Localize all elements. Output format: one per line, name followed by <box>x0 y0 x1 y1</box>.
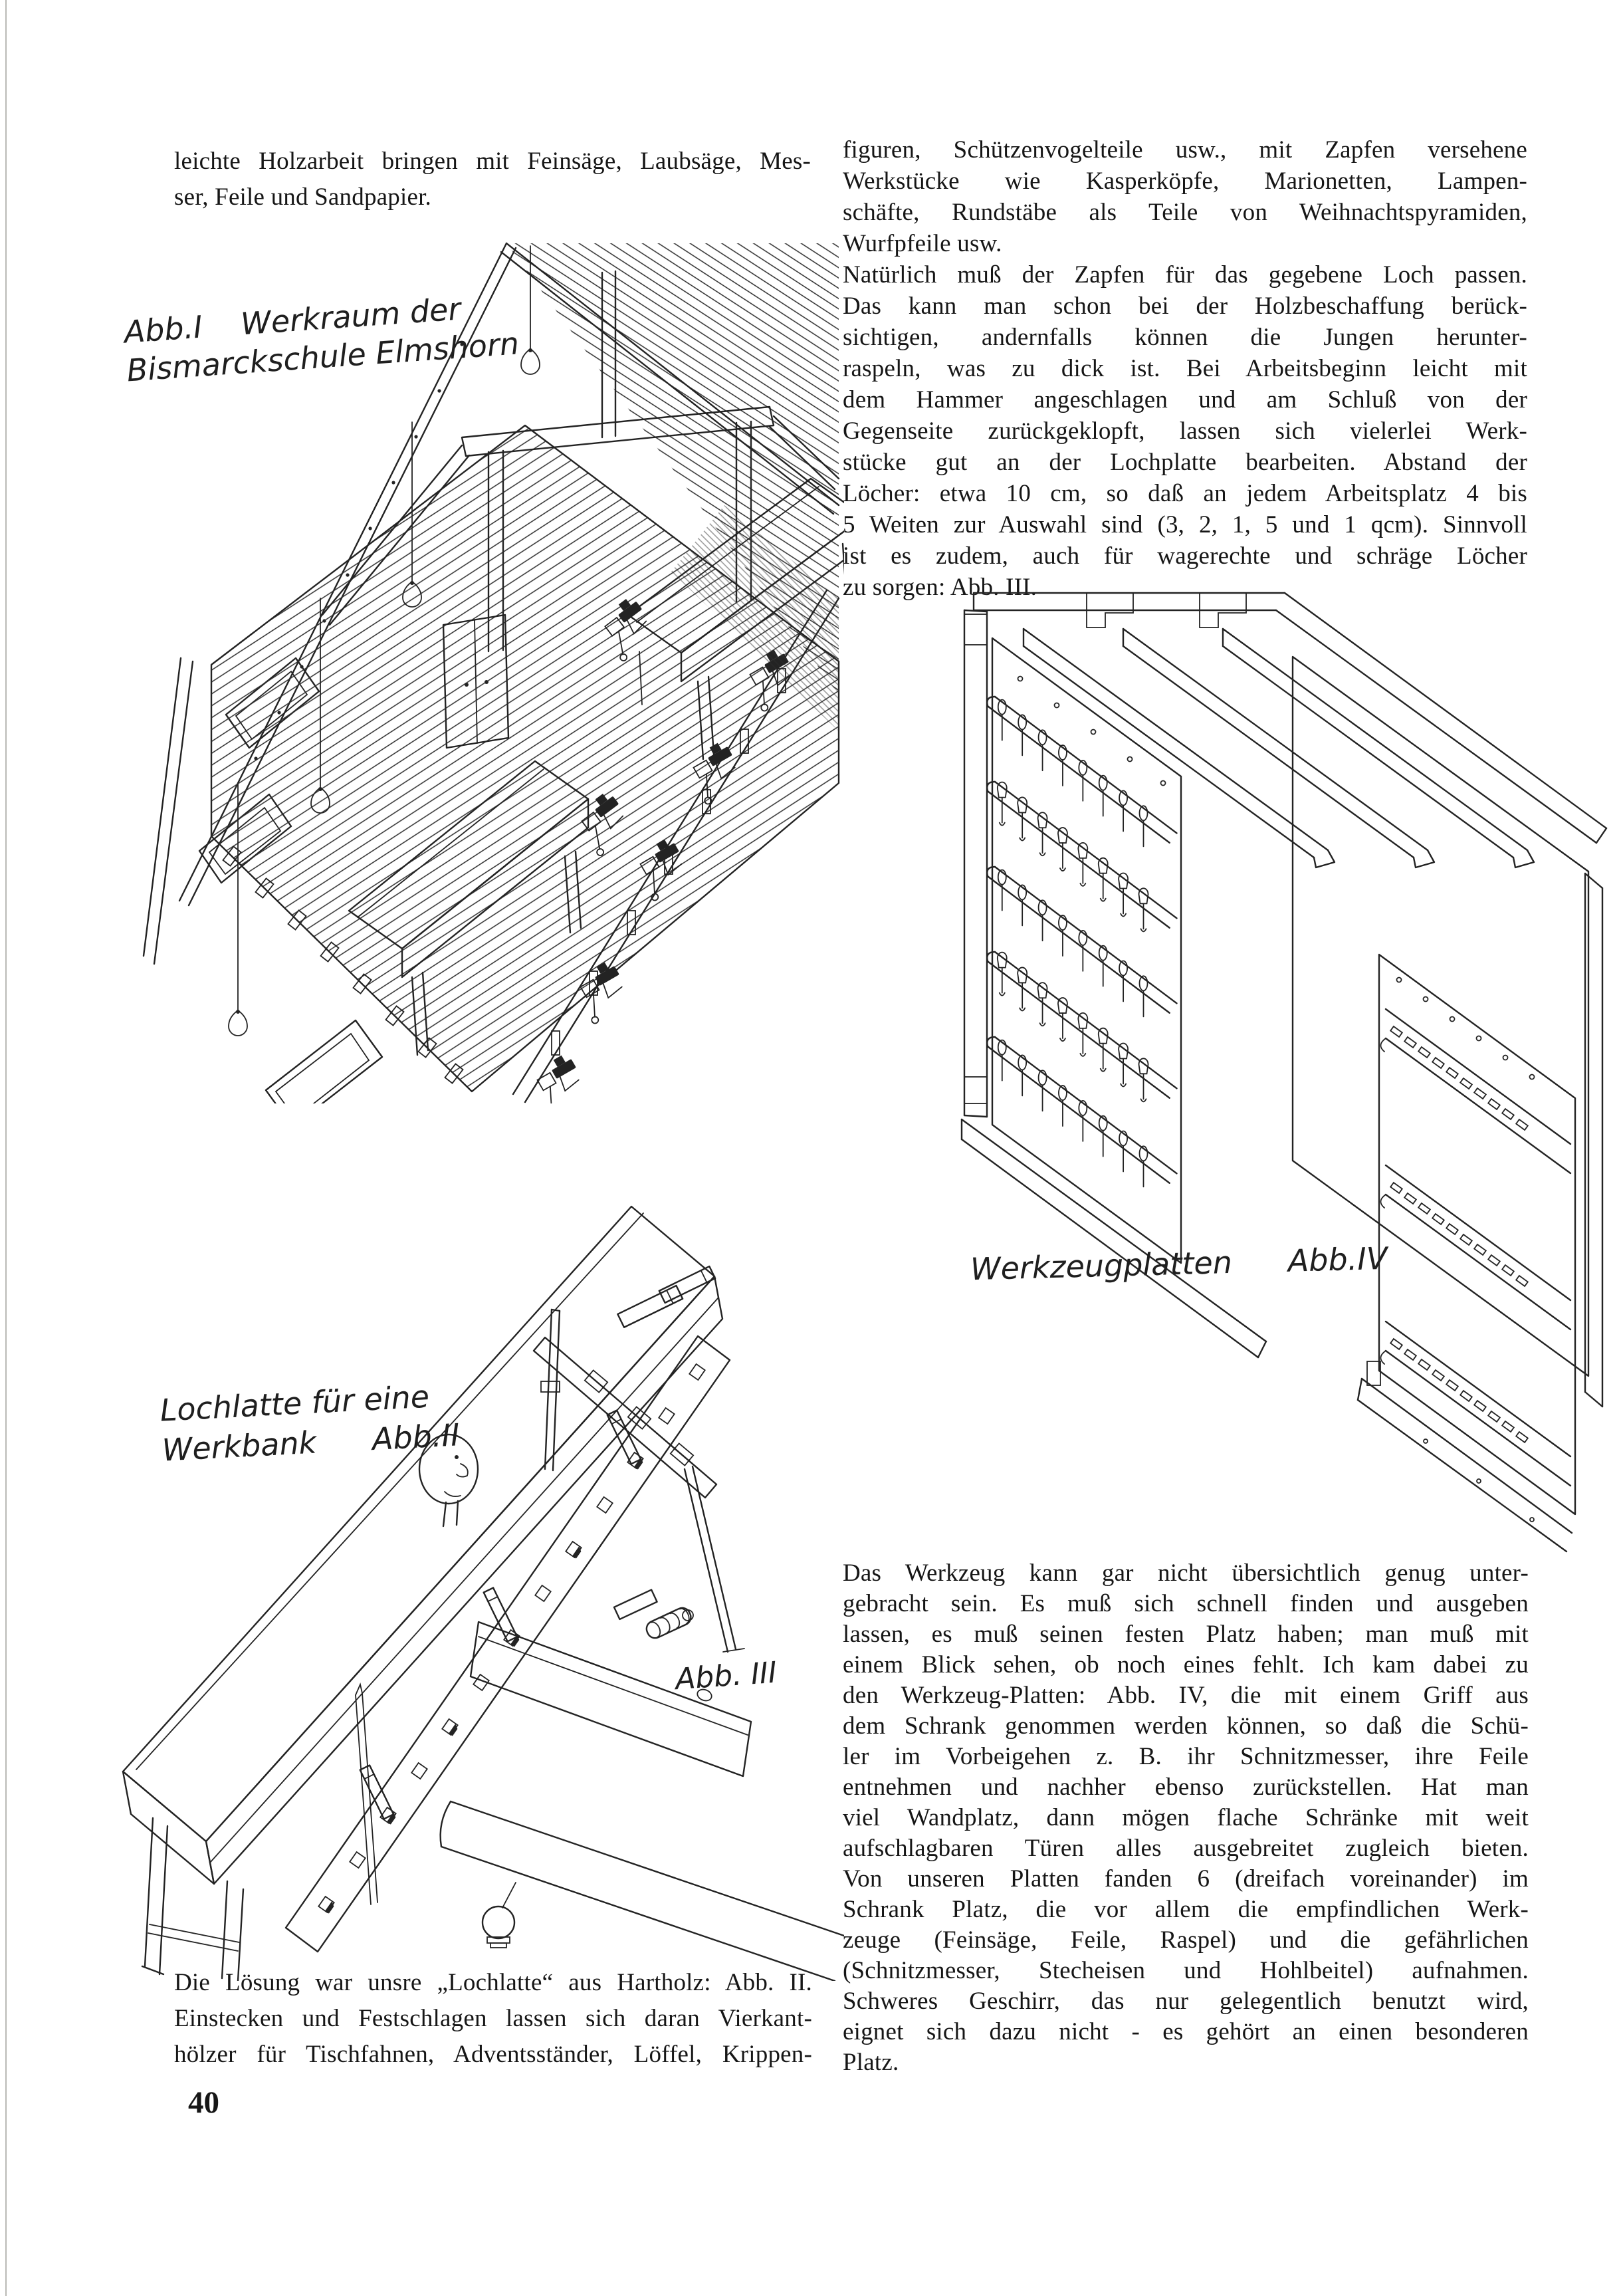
text-line: Von unseren Platten fanden 6 (dreifach v… <box>843 1864 1529 1894</box>
text-line: den Werkzeug-Platten: Abb. IV, die mit e… <box>843 1680 1529 1711</box>
spiral-peg <box>644 1605 693 1641</box>
text-line: schäfte, Rundstäbe als Teile von Weihnac… <box>843 197 1527 228</box>
text-line: Das Werkzeug kann gar nicht übersichtlic… <box>843 1558 1529 1589</box>
cabinet-bottom-board <box>962 1119 1266 1357</box>
text-line: aufschlagbaren Türen alles ausgebreitet … <box>843 1833 1529 1864</box>
right-tool-panel <box>1358 955 1575 1551</box>
text-line: Das kann man schon bei der Holzbeschaffu… <box>843 290 1527 322</box>
text-line: figuren, Schützenvogelteile usw., mit Za… <box>843 134 1527 166</box>
paragraph-right-bottom: Das Werkzeug kann gar nicht übersichtlic… <box>843 1558 1529 2078</box>
hatched-peg <box>614 1590 657 1619</box>
text-line: Natürlich muß der Zapfen für das gegeben… <box>843 259 1527 290</box>
tool-strip <box>1380 1165 1570 1329</box>
text-line: entnehmen und nachher ebenso zurückstell… <box>843 1772 1529 1803</box>
cabinet-rails <box>1024 629 1534 867</box>
figure4-title: Werkzeugplatten <box>970 1244 1232 1287</box>
text-line: Einstecken und Festschlagen lassen sich … <box>174 2001 812 2037</box>
text-line: Schweres Geschirr, das nur gelegentlich … <box>843 1986 1529 2017</box>
text-line: gebracht sein. Es muß sich schnell finde… <box>843 1589 1529 1619</box>
text-line: sichtigen, andernfalls können die Jungen… <box>843 322 1527 353</box>
text-line: ser, Feile und Sandpapier. <box>174 179 811 215</box>
figure-abb2-lochlatte-drawing <box>86 1097 844 1981</box>
text-line: viel Wandplatz, dann mögen flache Schrän… <box>843 1803 1529 1833</box>
text-line: Löcher: etwa 10 cm, so daß an jedem Arbe… <box>843 478 1527 509</box>
text-line: Gegenseite zurückgeklopft, lassen sich v… <box>843 415 1527 447</box>
figure3-ref: Abb. III <box>674 1656 778 1697</box>
figure2-caption: Lochlatte für eine WerkbankAbb.II <box>159 1375 461 1470</box>
square-pegs <box>360 1266 715 1819</box>
paragraph-right-top: figuren, Schützenvogelteile usw., mit Za… <box>843 134 1527 603</box>
text-line: zeuge (Feinsäge, Feile, Raspel) und die … <box>843 1925 1529 1956</box>
scanned-book-page: leichte Holzarbeit bringen mit Feinsäge,… <box>0 0 1621 2296</box>
text-line: (Schnitzmesser, Stecheisen und Hohlbeite… <box>843 1956 1529 1986</box>
text-line: Wurfpfeile usw. <box>843 228 1527 259</box>
text-line: Werkstücke wie Kasperköpfe, Marionetten,… <box>843 166 1527 197</box>
text-line: raspeln, was zu dick ist. Bei Arbeitsbeg… <box>843 353 1527 384</box>
tool-row <box>972 944 1181 1115</box>
tool-strip <box>1380 1009 1570 1173</box>
cabinet-top-board <box>974 593 1606 843</box>
left-upright-board <box>964 610 987 1117</box>
left-margin-rule <box>5 0 7 2296</box>
figure-abb4-toolplates-drawing <box>920 584 1618 1554</box>
figure2-title-2: Werkbank <box>161 1425 317 1468</box>
paragraph-left-caption: Die Lösung war unsre „Lochlatte“ aus Har… <box>174 1965 812 2073</box>
tool-strip <box>1380 1321 1570 1486</box>
text-line: einem Blick sehen, ob noch eines fehlt. … <box>843 1650 1529 1680</box>
tool-row <box>972 691 1179 860</box>
text-line: Schrank Platz, die vor allem die empfind… <box>843 1894 1529 1925</box>
figure2-ref: Abb.II <box>372 1417 461 1457</box>
text-line: ler im Vorbeigehen z. B. ihr Schnitzmess… <box>843 1742 1529 1772</box>
text-line: ist es zudem, auch für wagerechte und sc… <box>843 540 1527 572</box>
ball-handle <box>483 1883 516 1948</box>
tool-row <box>972 861 1179 1030</box>
page-number: 40 <box>188 2085 219 2121</box>
text-line: dem Hammer angeschlagen und am Schluß vo… <box>843 384 1527 415</box>
figure4-ref: Abb.IV <box>1287 1240 1388 1279</box>
paragraph-left-top: leichte Holzarbeit bringen mit Feinsäge,… <box>174 144 811 215</box>
workbench-top <box>123 1206 722 1884</box>
text-line: 5 Weiten zur Auswahl sind (3, 2, 1, 5 un… <box>843 509 1527 540</box>
figure1-ref: Abb.I <box>123 309 204 350</box>
text-line: Platz. <box>843 2047 1529 2078</box>
text-line: Die Lösung war unsre „Lochlatte“ aus Har… <box>174 1965 812 2001</box>
text-line: leichte Holzarbeit bringen mit Feinsäge,… <box>174 144 811 179</box>
tool-row <box>972 774 1181 945</box>
text-line: lassen, es muß seinen festen Platz haben… <box>843 1619 1529 1650</box>
figure3-caption: Abb. III <box>674 1656 778 1697</box>
text-line: hölzer für Tischfahnen, Adventsständer, … <box>174 2037 812 2073</box>
bottom-plank <box>441 1801 844 1981</box>
standing-rod <box>541 1310 560 1470</box>
text-line: dem Schrank genommen werden können, so d… <box>843 1711 1529 1742</box>
text-line: stücke gut an der Lochplatte bearbeiten.… <box>843 447 1527 478</box>
text-line: eignet sich dazu nicht - es gehört an ei… <box>843 2017 1529 2047</box>
tool-row <box>972 1031 1179 1200</box>
